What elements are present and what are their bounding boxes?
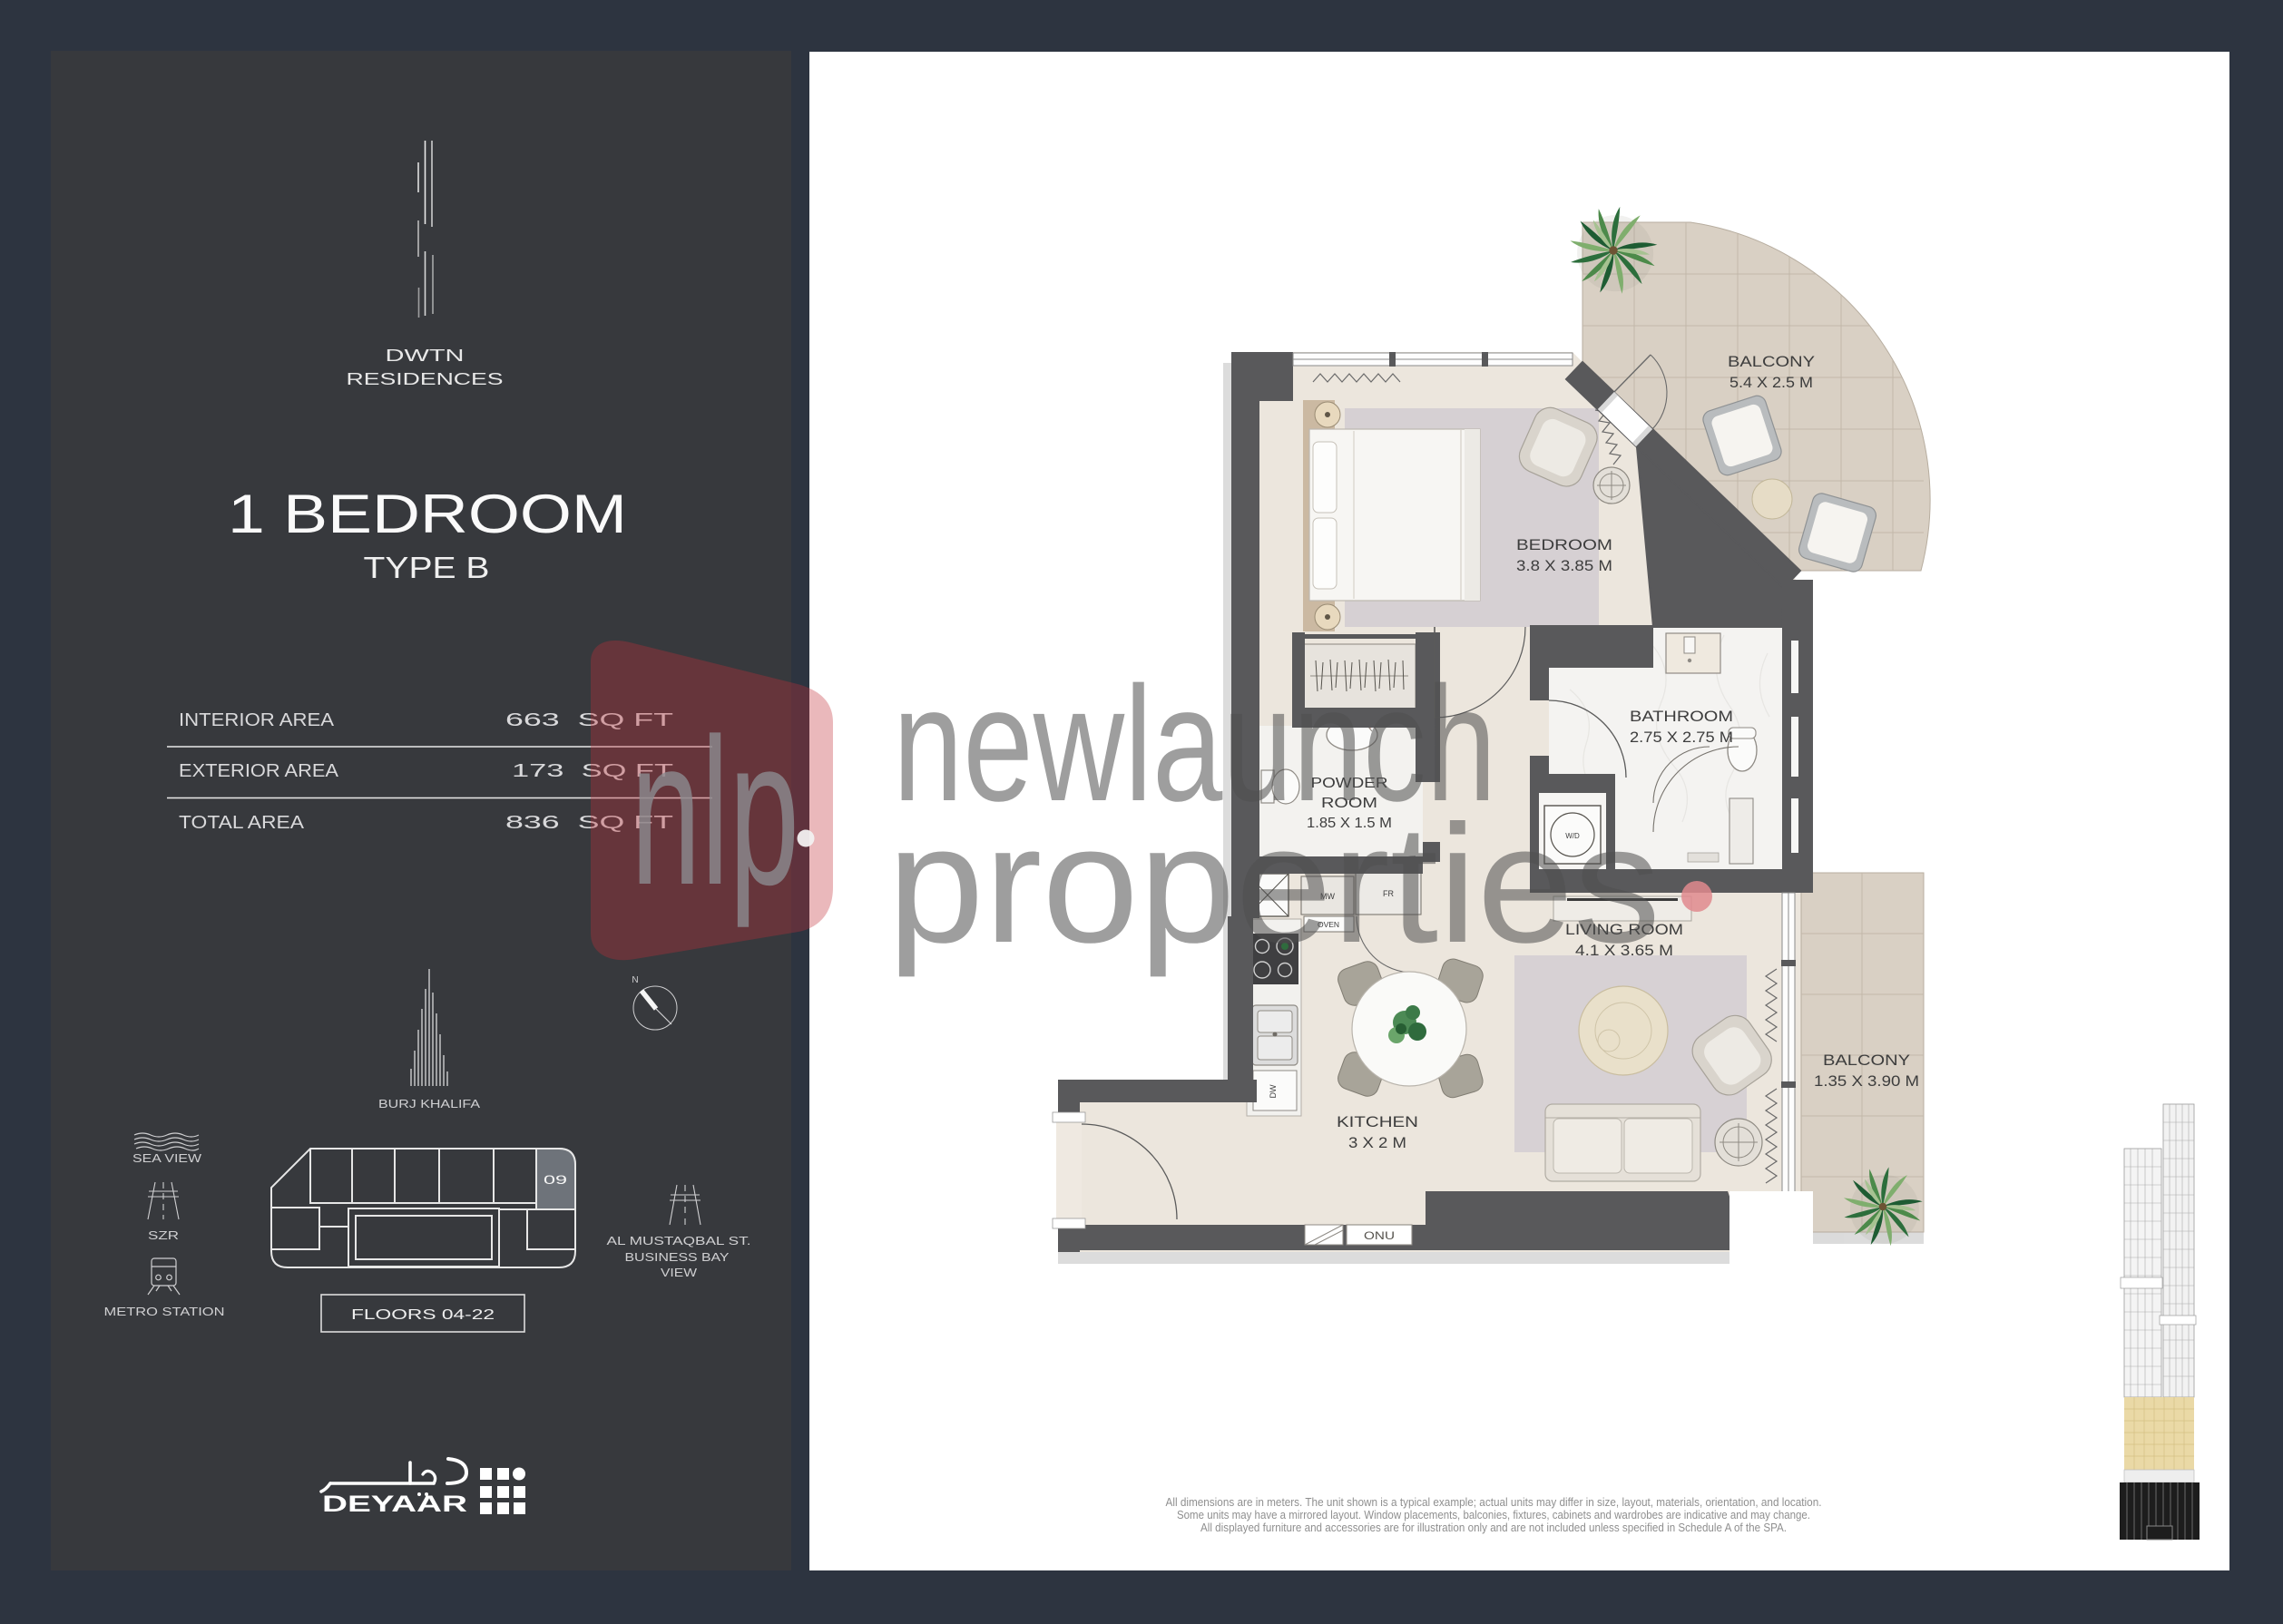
svg-text:DW: DW xyxy=(1269,1084,1278,1098)
svg-text:METRO STATION: METRO STATION xyxy=(104,1305,225,1318)
svg-text:DWTN: DWTN xyxy=(386,347,465,365)
svg-text:EXTERIOR AREA: EXTERIOR AREA xyxy=(179,761,339,781)
svg-text:2.75 X 2.75 M: 2.75 X 2.75 M xyxy=(1630,729,1733,746)
svg-text:BURJ KHALIFA: BURJ KHALIFA xyxy=(378,1097,480,1110)
svg-text:INTERIOR AREA: INTERIOR AREA xyxy=(179,710,335,730)
svg-text:ONU: ONU xyxy=(1364,1229,1395,1242)
svg-text:SZR: SZR xyxy=(148,1228,179,1242)
svg-text:BUSINESS BAY: BUSINESS BAY xyxy=(625,1250,730,1264)
svg-text:TOTAL AREA: TOTAL AREA xyxy=(179,813,305,833)
svg-text:1 BEDROOM: 1 BEDROOM xyxy=(228,484,627,544)
svg-text:TYPE B: TYPE B xyxy=(364,551,490,584)
svg-text:09: 09 xyxy=(544,1172,567,1187)
svg-text:properties: properties xyxy=(887,791,1661,978)
svg-text:BALCONY: BALCONY xyxy=(1728,353,1815,370)
svg-text:1.35 X 3.90 M: 1.35 X 3.90 M xyxy=(1814,1072,1919,1090)
svg-text:BATHROOM: BATHROOM xyxy=(1630,708,1733,725)
svg-text:All displayed furniture and ac: All displayed furniture and accessories … xyxy=(1200,1521,1787,1534)
svg-text:Some units may have a mirrored: Some units may have a mirrored layout. W… xyxy=(1177,1509,1810,1521)
svg-text:3 X 2 M: 3 X 2 M xyxy=(1348,1134,1406,1151)
svg-text:5.4 X 2.5 M: 5.4 X 2.5 M xyxy=(1729,374,1813,391)
svg-text:All dimensions are in meters.: All dimensions are in meters. The unit s… xyxy=(1166,1496,1822,1509)
svg-text:DEYAAR: DEYAAR xyxy=(322,1492,467,1517)
svg-text:3.8 X 3.85 M: 3.8 X 3.85 M xyxy=(1516,557,1612,574)
svg-text:BEDROOM: BEDROOM xyxy=(1516,536,1612,553)
svg-text:nlp: nlp xyxy=(631,695,799,928)
svg-text:FLOORS 04-22: FLOORS 04-22 xyxy=(351,1307,495,1323)
svg-text:KITCHEN: KITCHEN xyxy=(1337,1113,1418,1130)
svg-text:AL MUSTAQBAL ST.: AL MUSTAQBAL ST. xyxy=(607,1234,751,1247)
svg-text:VIEW: VIEW xyxy=(661,1266,698,1279)
svg-text:BALCONY: BALCONY xyxy=(1823,1052,1910,1069)
svg-text:RESIDENCES: RESIDENCES xyxy=(347,370,504,388)
svg-text:SEA VIEW: SEA VIEW xyxy=(132,1151,202,1165)
svg-text:N: N xyxy=(632,975,638,985)
